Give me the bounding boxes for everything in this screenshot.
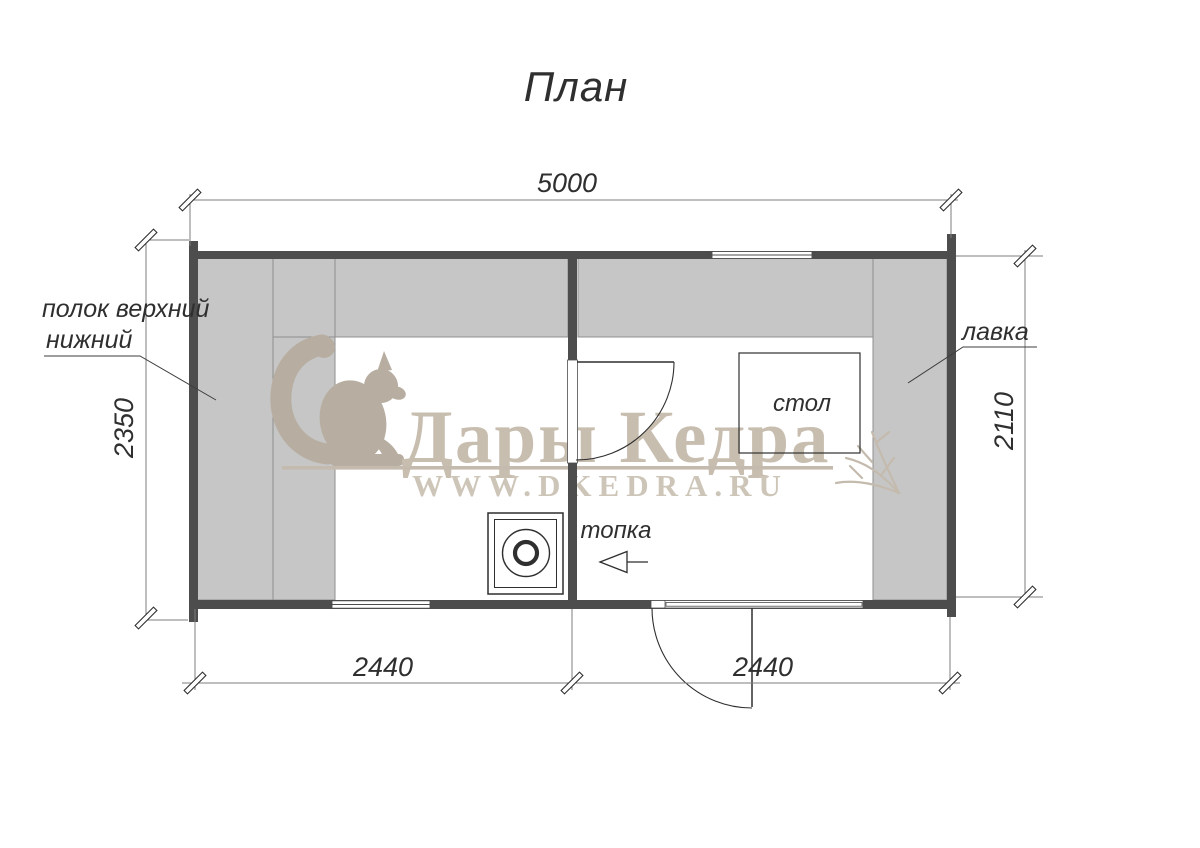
firebox-arrow-icon [600, 552, 648, 573]
dim-text-2350: 2350 [109, 398, 139, 459]
watermark-website-text: WWW.DKEDRA.RU [412, 468, 788, 503]
squirrel-ear [377, 351, 392, 372]
left-room-top-shelf [335, 258, 568, 337]
bottom-left-window [332, 601, 430, 608]
watermark: Дары Кедра WWW.DKEDRA.RU [281, 336, 899, 503]
label-table: стол [773, 390, 832, 417]
squirrel-feet [330, 454, 404, 466]
dim-text-2110: 2110 [989, 392, 1019, 451]
label-bench: лавка [960, 318, 1029, 346]
label-shelf-lower: нижний [46, 326, 133, 354]
page-title: План [524, 63, 629, 110]
label-shelf-upper: полок верхний [42, 295, 210, 323]
stove-outer-frame [488, 513, 563, 594]
dim-text-2440-right: 2440 [732, 652, 793, 682]
floor-plan-page: Дары Кедра WWW.DKEDRA.RU [0, 0, 1200, 848]
floor-plan-drawing: Дары Кедра WWW.DKEDRA.RU [0, 0, 1200, 848]
dim-text-5000: 5000 [537, 168, 597, 198]
left-shelf-block [197, 258, 335, 600]
top-window [712, 252, 812, 259]
dim-text-2440-left: 2440 [352, 652, 413, 682]
stove [488, 513, 563, 594]
squirrel-tail-tip [313, 336, 335, 358]
right-room-top-bench [578, 258, 873, 337]
right-wall [947, 234, 956, 617]
label-firebox: топка [581, 517, 652, 544]
right-wall-bench [873, 258, 947, 600]
